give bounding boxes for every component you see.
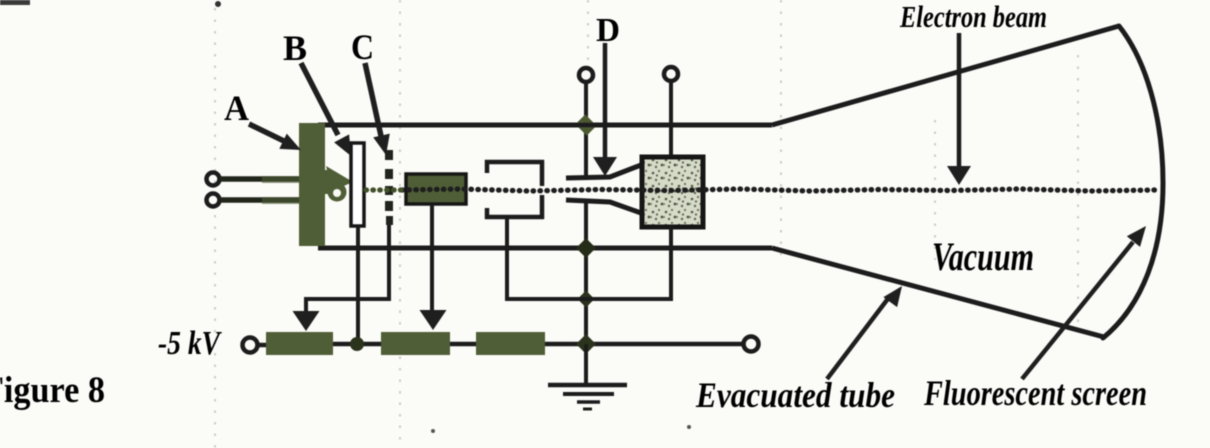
- svg-text:Fluorescent screen: Fluorescent screen: [923, 373, 1147, 413]
- svg-text:D: D: [596, 12, 620, 49]
- svg-text:Electron beam: Electron beam: [899, 0, 1047, 34]
- svg-text:Figure 8: Figure 8: [0, 370, 105, 411]
- svg-text:A: A: [224, 88, 249, 128]
- svg-text:Evacuated tube: Evacuated tube: [695, 375, 895, 415]
- svg-text:Vacuum: Vacuum: [932, 234, 1034, 279]
- svg-text:-5 kV: -5 kV: [158, 325, 222, 362]
- svg-text:C: C: [351, 27, 374, 67]
